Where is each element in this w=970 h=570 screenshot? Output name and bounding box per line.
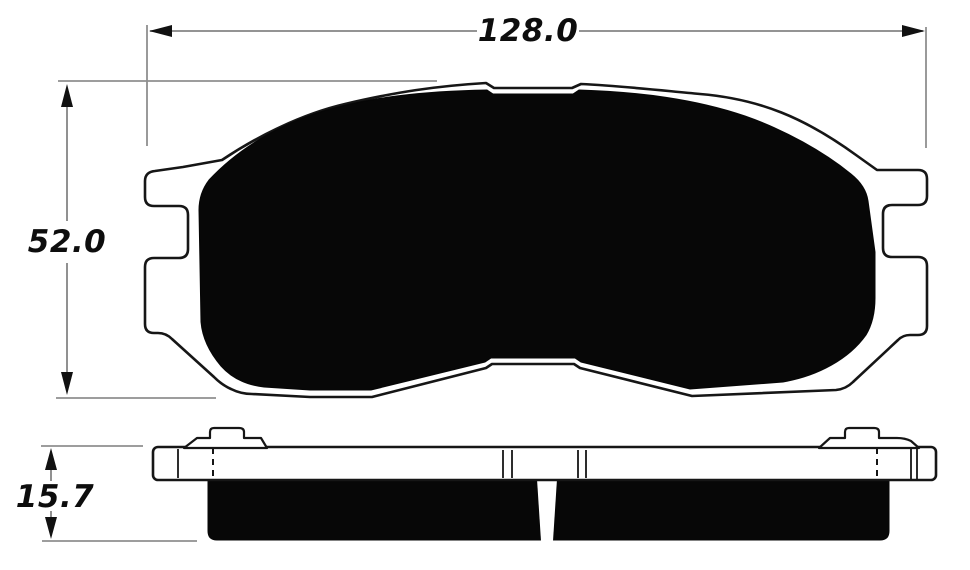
arrow-left-icon bbox=[149, 25, 172, 37]
brake-pad-technical-drawing: 128.0 52.0 15.7 bbox=[0, 0, 970, 570]
friction-material-front bbox=[199, 90, 875, 390]
arrow-right-icon bbox=[902, 25, 925, 37]
right-clip bbox=[819, 428, 919, 448]
width-value: 128.0 bbox=[478, 13, 579, 49]
arrow-down-icon bbox=[61, 372, 73, 395]
side-view bbox=[153, 428, 936, 541]
arrow-down-icon bbox=[45, 517, 57, 539]
drawing-svg: 128.0 52.0 15.7 bbox=[0, 0, 970, 570]
backplate-side bbox=[153, 447, 936, 480]
thickness-value: 15.7 bbox=[16, 479, 95, 515]
front-view bbox=[145, 83, 927, 397]
arrow-up-icon bbox=[61, 84, 73, 107]
left-clip bbox=[184, 428, 267, 448]
height-value: 52.0 bbox=[28, 224, 107, 260]
arrow-up-icon bbox=[45, 448, 57, 470]
